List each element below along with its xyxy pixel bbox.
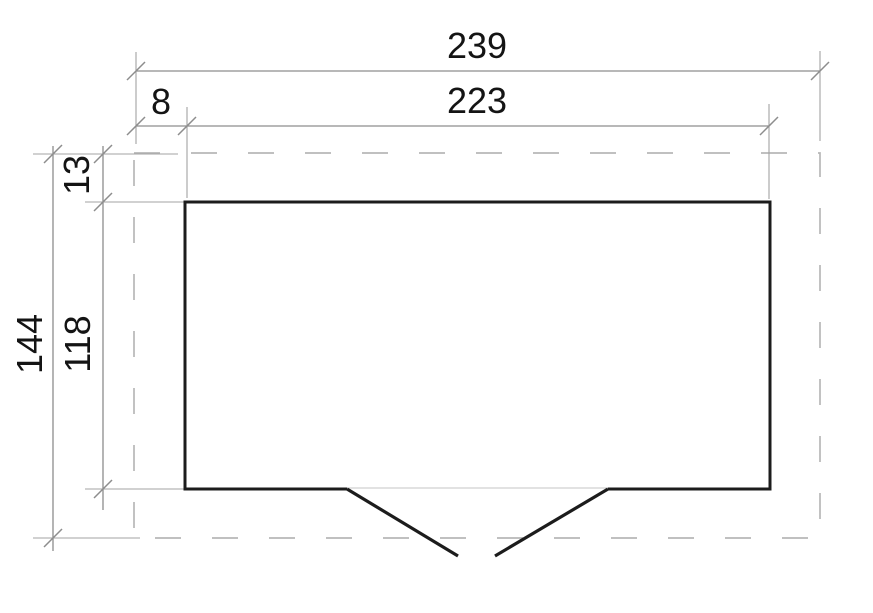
floor-plan-drawing: 239 223 8 144 118 13	[0, 0, 873, 613]
dim-label-front-offset: 13	[56, 155, 97, 195]
extension-lines	[33, 51, 820, 538]
technical-drawing-page: 239 223 8 144 118 13	[0, 0, 873, 613]
dim-label-wall-width: 223	[447, 80, 507, 121]
dimension-lines	[53, 71, 820, 551]
door-leaf-left	[347, 489, 458, 556]
dim-label-wall-depth: 118	[57, 315, 98, 372]
door-leaf-right	[495, 489, 608, 556]
dimension-ticks	[44, 62, 829, 547]
dim-label-overall-depth: 144	[9, 314, 50, 374]
dimension-labels: 239 223 8 144 118 13	[9, 25, 507, 374]
wall-outline	[185, 202, 770, 489]
dim-label-side-offset: 8	[151, 81, 171, 122]
roof-overhang-dashed-outline	[134, 153, 820, 538]
dim-label-overall-width: 239	[447, 25, 507, 66]
